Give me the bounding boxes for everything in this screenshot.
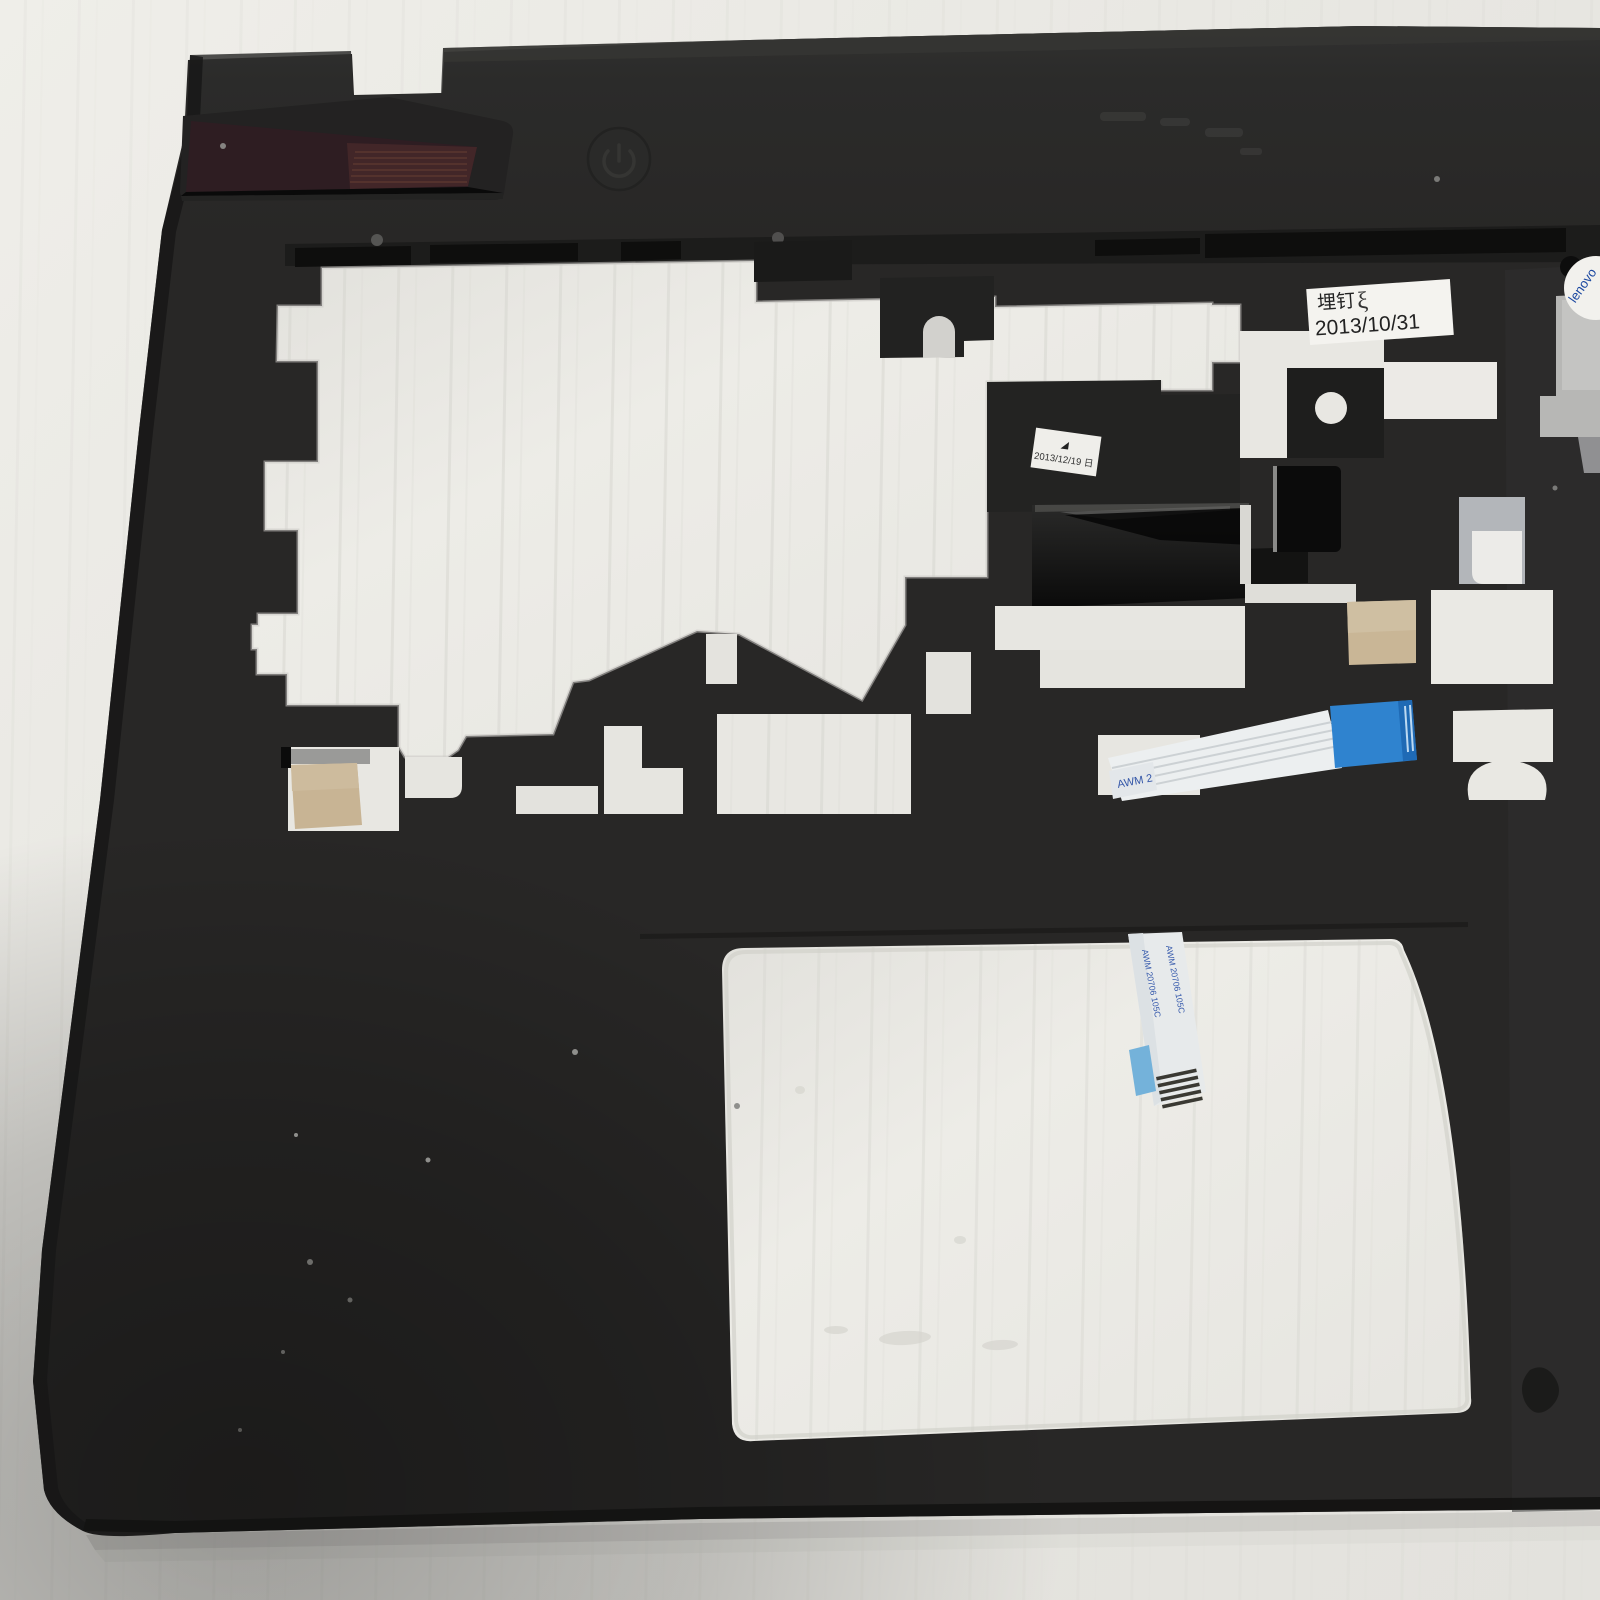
- svg-text:ξ: ξ: [1356, 288, 1369, 315]
- svg-text:埋钉: 埋钉: [1316, 290, 1355, 315]
